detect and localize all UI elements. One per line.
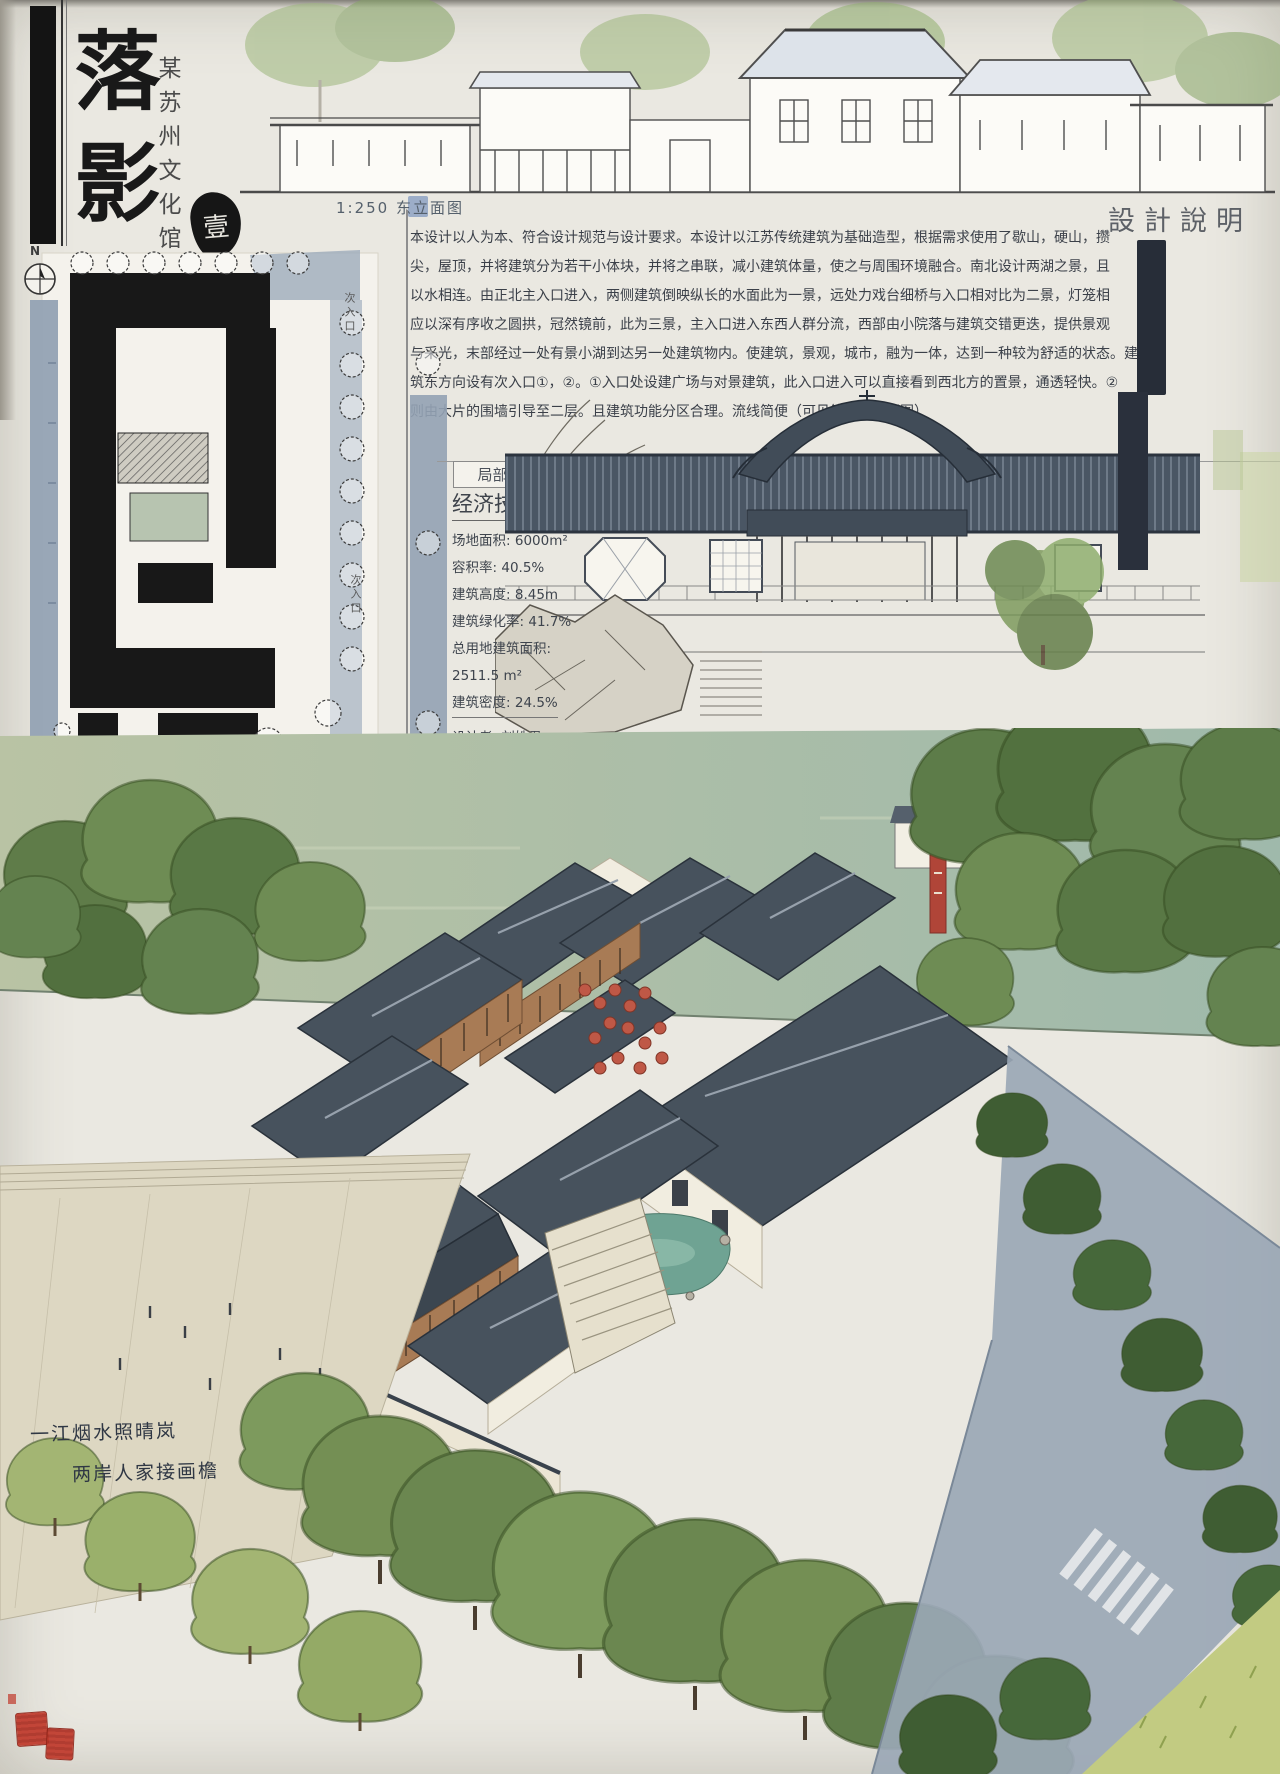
- poem-line-1: 一江烟水照晴岚: [30, 1416, 178, 1447]
- notes-line: 应以深有序收之圆拱，冠然镜前，此为三景，主入口进入东西人群分流，西部由小院落与建…: [410, 311, 1148, 340]
- east-elevation-caption: 1:250 东立面图: [336, 197, 464, 218]
- secondary-entrance-label-top: 次入口: [341, 292, 357, 334]
- presentation-board: 落影 某苏州文化馆 壹: [0, 0, 1280, 1774]
- partial-elevation-drawing: [495, 390, 1280, 738]
- indicator-row: 建筑绿化率: 41.7%: [452, 609, 612, 636]
- indicator-row: 容积率: 40.5%: [452, 555, 612, 582]
- notes-line: 以水相连。由正北主入口进入，两侧建筑倒映纵长的水面此为一景，远处力戏台细桥与入口…: [410, 282, 1148, 311]
- indicator-row: 建筑密度: 24.5%: [452, 690, 612, 718]
- notes-line: 本设计以人为本、符合设计规范与设计要求。本设计以江苏传统建筑为基础造型，根据需求…: [410, 224, 1148, 253]
- artist-seal-1: [15, 1711, 49, 1747]
- notes-line: 与采光，末部经过一处有景小湖到达另一处建筑物内。使建筑，景观，城市，融为一体，达…: [410, 340, 1148, 369]
- indicator-row: 建筑高度: 8.45m: [452, 582, 612, 609]
- secondary-entrance-label-bottom: 次入口: [347, 574, 363, 616]
- notes-line: 尖，屋顶，并将建筑分为若干小体块，并将之串联，减小建筑体量，使之与周围环境融合。…: [410, 253, 1148, 282]
- perspective-rendering: [0, 728, 1280, 1774]
- indicator-row: 总用地建筑面积:: [452, 636, 612, 663]
- indicator-row: 场地面积: 6000m²: [452, 528, 612, 555]
- poem-line-2: 两岸人家接画檐: [72, 1456, 220, 1487]
- seal-mark: [8, 1694, 16, 1704]
- artist-seal-2: [45, 1727, 75, 1760]
- photo-edge-left: [0, 0, 16, 420]
- indicators-list: 场地面积: 6000m² 容积率: 40.5% 建筑高度: 8.45m 建筑绿化…: [452, 528, 612, 718]
- indicator-row: 2511.5 m²: [452, 663, 612, 690]
- north-arrow-label: N: [30, 244, 40, 258]
- title-ink-bar: [30, 6, 56, 244]
- page-subtitle: 某苏州文化馆: [150, 56, 184, 260]
- page-title: 落影: [66, 26, 152, 250]
